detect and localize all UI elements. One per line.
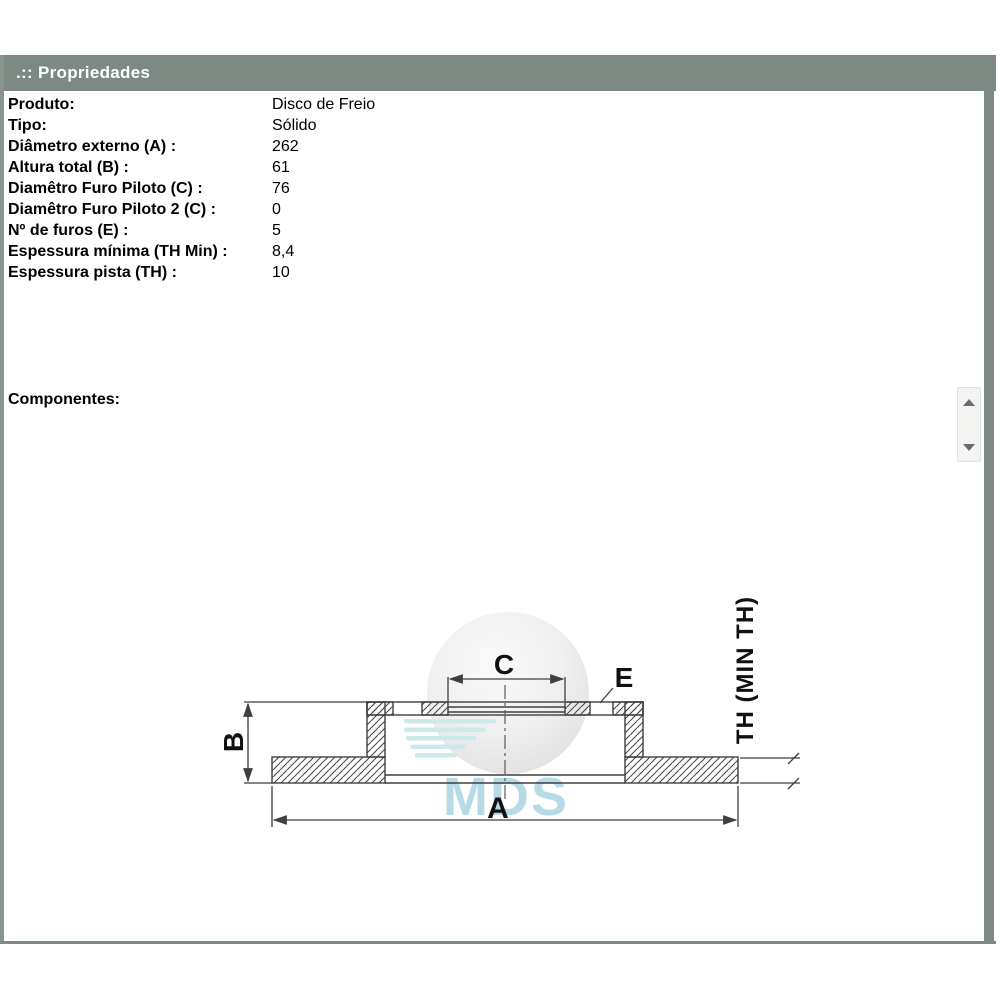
e-leader-line (600, 688, 613, 703)
dim-label-c: C (494, 649, 514, 680)
dim-label-e: E (615, 662, 634, 693)
dim-label-th: TH (MIN TH) (732, 596, 759, 744)
ring-right (625, 757, 738, 783)
dim-label-a: A (487, 792, 509, 825)
ring-left (272, 757, 385, 783)
brake-disc-drawing: MDS (0, 0, 1000, 1000)
properties-window: .:: Propriedades Produto:Disco de Freio … (0, 0, 1000, 1000)
dim-label-b: B (218, 732, 249, 752)
